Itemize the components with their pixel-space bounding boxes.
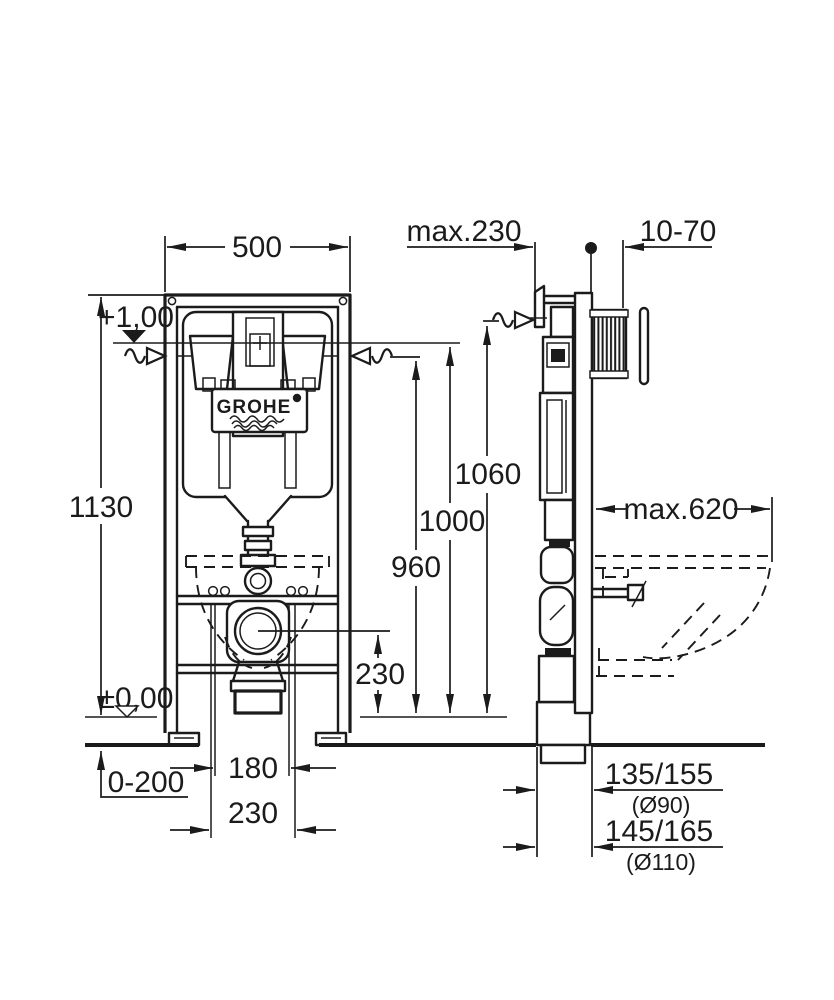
flush-sleeve-hatched — [592, 310, 626, 378]
dim-drain-offset-2-dia: (Ø110) — [626, 849, 696, 875]
dim-drain-offset-2: 145/165 — [605, 815, 713, 848]
dim-height-960: 960 — [391, 551, 441, 584]
dim-bowl-depth: max.620 — [623, 493, 738, 526]
flush-actuation-plate — [640, 308, 648, 384]
level-plus-label: +1,00 — [98, 301, 174, 334]
front-view: GROHE — [85, 295, 507, 838]
dim-height-1000: 1000 — [419, 505, 486, 538]
wall-reference-dot-icon — [585, 242, 597, 254]
dim-floor-buildup: 0-200 — [108, 766, 185, 799]
dim-frame-width: 500 — [232, 231, 282, 264]
threaded-rod — [592, 581, 646, 607]
dim-wall-finish-range: 10-70 — [640, 215, 717, 248]
technical-drawing-page: GROHE — [0, 0, 834, 1000]
level-zero-label: ±0,00 — [99, 682, 174, 715]
dim-spacing-180: 180 — [228, 752, 278, 785]
level-triangle-filled-icon — [122, 330, 146, 343]
dim-outlet-height: 230 — [355, 658, 405, 691]
brand-logo-text: GROHE — [217, 397, 292, 418]
dim-height-1060: 1060 — [455, 458, 522, 491]
side-frame-profile — [539, 307, 574, 702]
wc-bowl-outline-side — [595, 556, 771, 676]
dim-overall-height: 1130 — [69, 491, 134, 524]
registered-dot-icon — [293, 394, 301, 402]
dim-drain-offset-1: 135/155 — [605, 758, 713, 791]
water-arrow-right-icon — [352, 348, 392, 364]
dim-spacing-230: 230 — [228, 797, 278, 830]
grohe-logo: GROHE — [212, 389, 307, 432]
dim-frame-depth: max.230 — [406, 215, 521, 248]
water-arrow-side-icon — [493, 312, 533, 328]
water-arrow-left-icon — [125, 348, 165, 364]
wall-plate — [575, 293, 592, 713]
flush-pipe-and-outlet — [227, 521, 289, 713]
installation-drawing-svg: GROHE — [0, 0, 834, 1000]
